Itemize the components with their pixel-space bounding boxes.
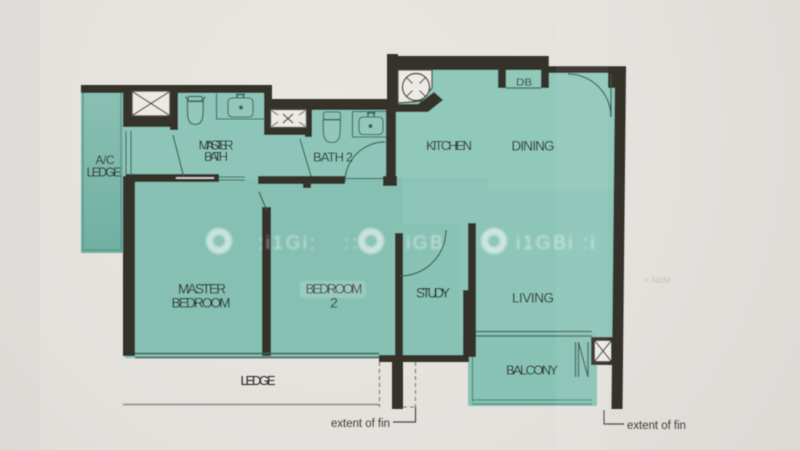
svg-text:LEDGE: LEDGE [241,373,276,388]
svg-text:LIVING: LIVING [512,291,554,306]
svg-text:BEDROOM: BEDROOM [172,296,231,311]
svg-text:i1GBi :i: i1GBi :i [516,233,597,254]
svg-text:DB: DB [516,77,532,89]
svg-text:BATH 2: BATH 2 [313,150,353,165]
svg-text::i1Gi:: :i1Gi: [258,233,317,254]
svg-text:KITCHEN: KITCHEN [426,138,472,153]
svg-text:BALCONY: BALCONY [506,363,558,378]
svg-text:extent of fin: extent of fin [331,418,390,430]
svg-text:extent of fin: extent of fin [627,420,686,432]
svg-text:LEDGE: LEDGE [87,166,122,180]
svg-text:STUDY: STUDY [416,286,450,301]
svg-text:DINING: DINING [512,139,555,154]
svg-text:iGB: iGB [406,233,445,254]
svg-text:MASTER: MASTER [178,282,226,297]
svg-text:< Note: < Note [644,275,671,285]
svg-text:BATH: BATH [204,149,228,164]
